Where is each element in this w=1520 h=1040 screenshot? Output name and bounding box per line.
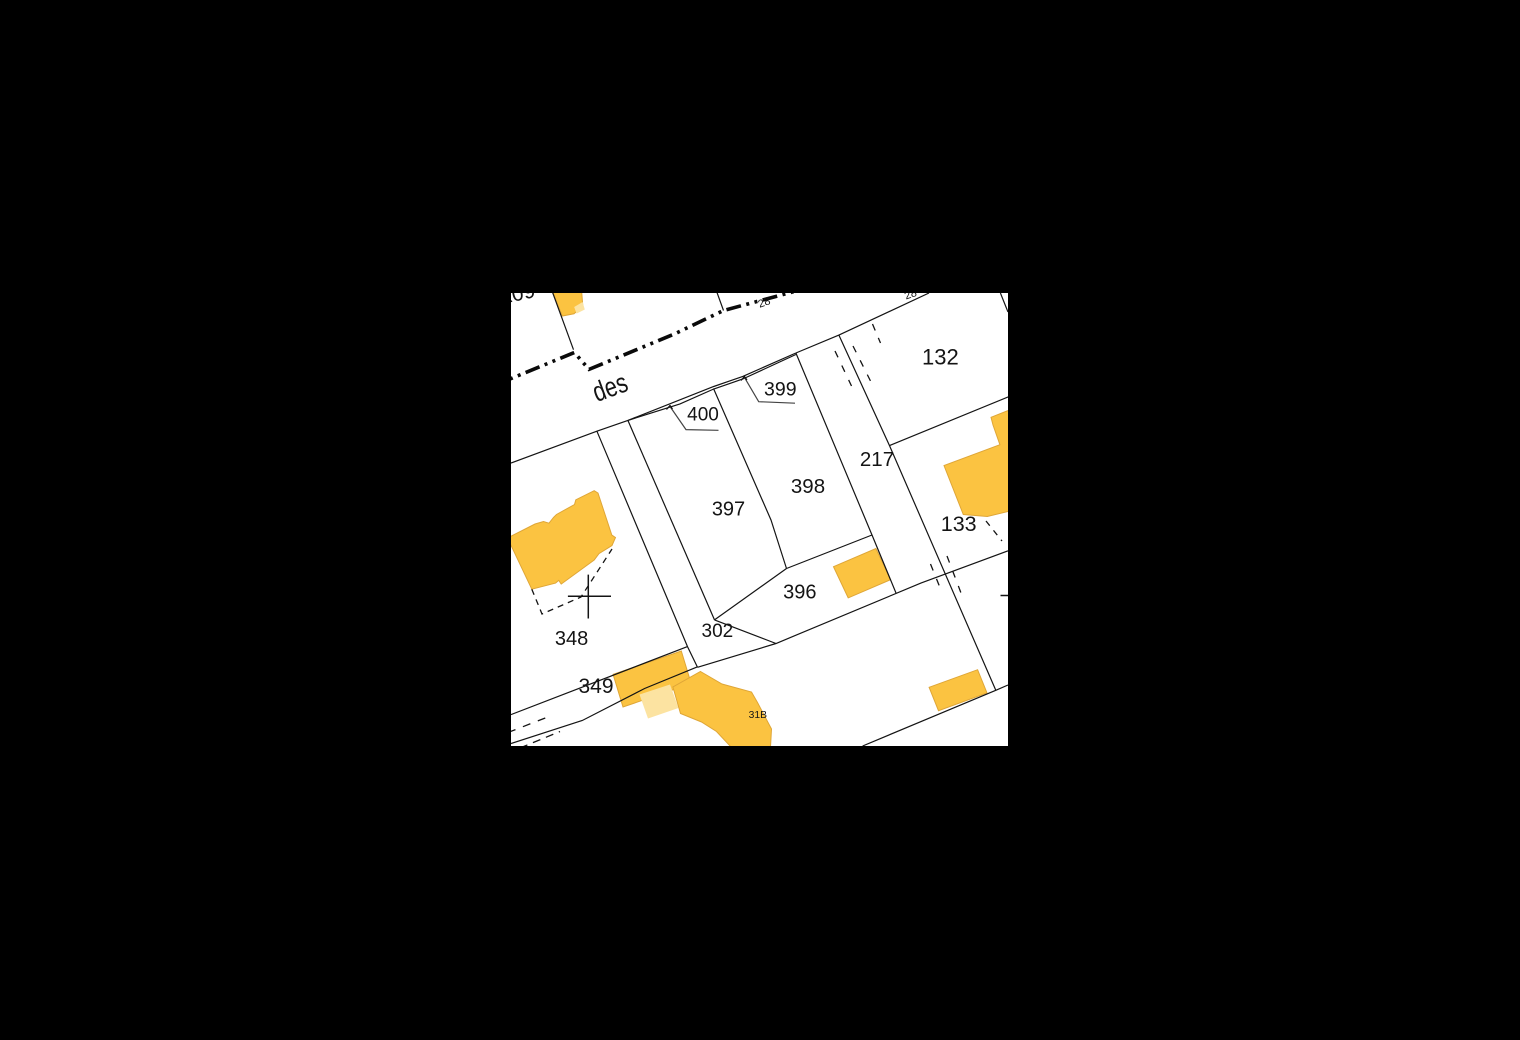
svg-text:302: 302 <box>702 621 734 642</box>
svg-text:217: 217 <box>860 448 894 471</box>
svg-text:400: 400 <box>687 405 719 426</box>
svg-text:399: 399 <box>764 379 797 401</box>
svg-text:348: 348 <box>555 628 588 650</box>
svg-text:398: 398 <box>791 475 825 498</box>
svg-text:31B: 31B <box>749 710 767 721</box>
svg-text:349: 349 <box>578 675 613 698</box>
svg-text:132: 132 <box>922 345 959 370</box>
svg-text:396: 396 <box>783 582 816 604</box>
svg-text:397: 397 <box>712 499 745 521</box>
svg-text:133: 133 <box>941 512 977 536</box>
